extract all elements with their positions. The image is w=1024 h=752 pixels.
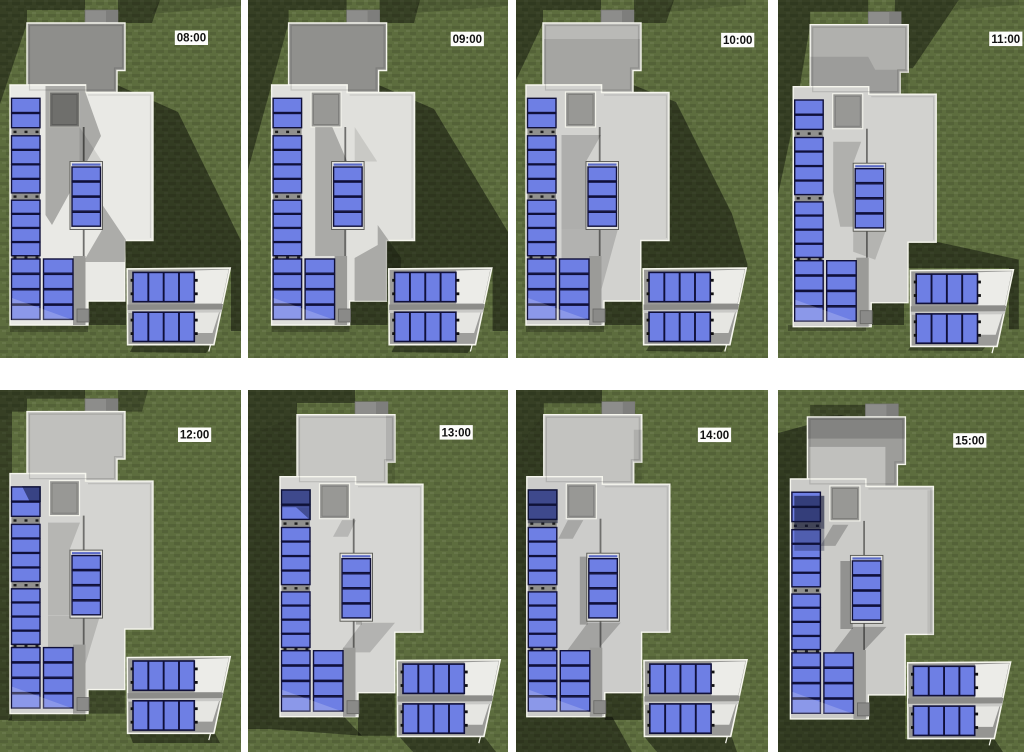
svg-text:13:00: 13:00 bbox=[441, 427, 470, 439]
svg-text:14:00: 14:00 bbox=[700, 430, 729, 442]
svg-text:12:00: 12:00 bbox=[180, 430, 209, 442]
svg-text:15:00: 15:00 bbox=[955, 435, 984, 447]
svg-text:10:00: 10:00 bbox=[723, 35, 752, 47]
svg-text:09:00: 09:00 bbox=[453, 34, 482, 46]
svg-text:11:00: 11:00 bbox=[991, 34, 1020, 46]
svg-text:08:00: 08:00 bbox=[177, 33, 206, 45]
